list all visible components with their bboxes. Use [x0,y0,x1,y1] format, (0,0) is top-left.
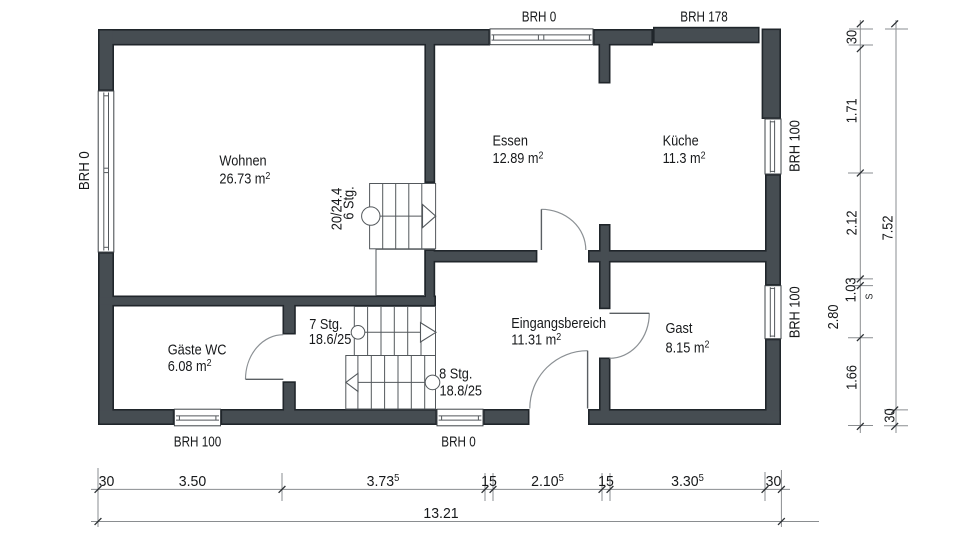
svg-text:2.80: 2.80 [824,304,841,329]
svg-text:11.3 m2: 11.3 m2 [663,149,706,166]
svg-text:1.03: 1.03 [842,277,859,302]
svg-text:1.66: 1.66 [843,365,860,390]
svg-text:Gast: Gast [666,319,693,336]
svg-text:S: S [864,293,876,299]
svg-text:Eingangsbereich: Eingangsbereich [511,314,606,331]
svg-text:BRH 0: BRH 0 [75,151,92,190]
svg-text:6 Stg.: 6 Stg. [339,186,356,219]
svg-text:30: 30 [843,30,860,44]
svg-text:BRH 100: BRH 100 [786,120,803,172]
svg-text:3.50: 3.50 [179,474,206,490]
svg-text:BRH 100: BRH 100 [786,286,803,338]
svg-text:13.21: 13.21 [423,506,458,522]
svg-text:Gäste WC: Gäste WC [168,340,227,357]
svg-text:BRH 0: BRH 0 [441,433,475,450]
svg-text:Küche: Küche [663,131,699,148]
svg-text:30: 30 [99,474,115,490]
svg-text:BRH 0: BRH 0 [522,8,556,25]
svg-text:7.52: 7.52 [878,215,895,240]
svg-text:BRH 100: BRH 100 [174,433,221,450]
svg-text:30: 30 [880,408,897,422]
svg-text:26.73 m2: 26.73 m2 [219,170,270,187]
svg-text:BRH 178: BRH 178 [680,8,727,25]
svg-text:11.31 m2: 11.31 m2 [511,331,561,348]
svg-text:6.08 m2: 6.08 m2 [168,357,212,374]
svg-text:15: 15 [598,474,614,490]
svg-text:8 Stg.: 8 Stg. [439,364,472,381]
svg-text:18.8/25: 18.8/25 [440,381,483,398]
svg-text:1.71: 1.71 [843,98,860,123]
svg-text:2.12: 2.12 [843,210,860,235]
svg-text:30: 30 [766,474,782,490]
svg-text:18.6/25: 18.6/25 [309,330,352,347]
svg-text:Wohnen: Wohnen [219,151,266,168]
svg-text:8.15 m2: 8.15 m2 [666,338,710,355]
svg-text:15: 15 [481,474,497,490]
svg-text:Essen: Essen [493,131,528,148]
svg-text:12.89 m2: 12.89 m2 [493,149,544,166]
